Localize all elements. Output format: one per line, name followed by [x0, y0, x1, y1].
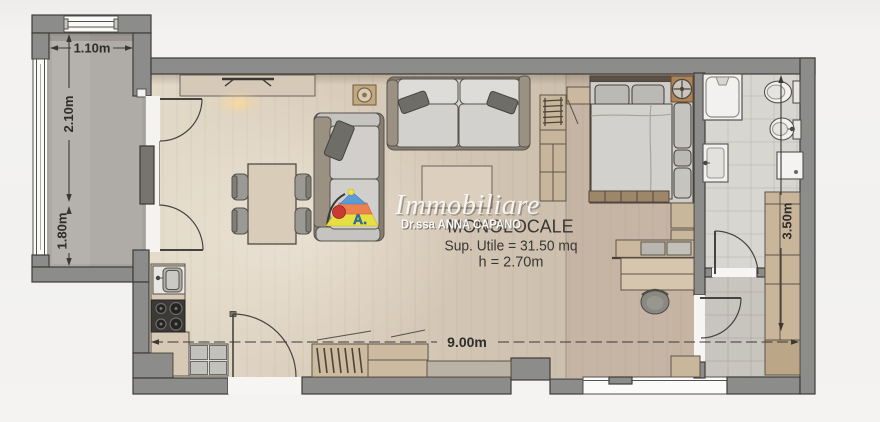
svg-text:A.: A. [353, 211, 367, 227]
svg-text:1.10m: 1.10m [74, 41, 111, 56]
svg-text:3.50m: 3.50m [780, 203, 795, 240]
svg-text:2.10m: 2.10m [61, 96, 76, 133]
svg-text:Sup. Utile = 31.50 mq: Sup. Utile = 31.50 mq [445, 238, 578, 255]
svg-text:Immobiliare: Immobiliare [394, 189, 540, 221]
svg-text:Dr.ssa ANNA CAPANO: Dr.ssa ANNA CAPANO [401, 218, 521, 232]
svg-text:h = 2.70m: h = 2.70m [479, 255, 544, 271]
svg-text:9.00m: 9.00m [447, 334, 487, 350]
svg-text:1.80m: 1.80m [55, 213, 70, 250]
